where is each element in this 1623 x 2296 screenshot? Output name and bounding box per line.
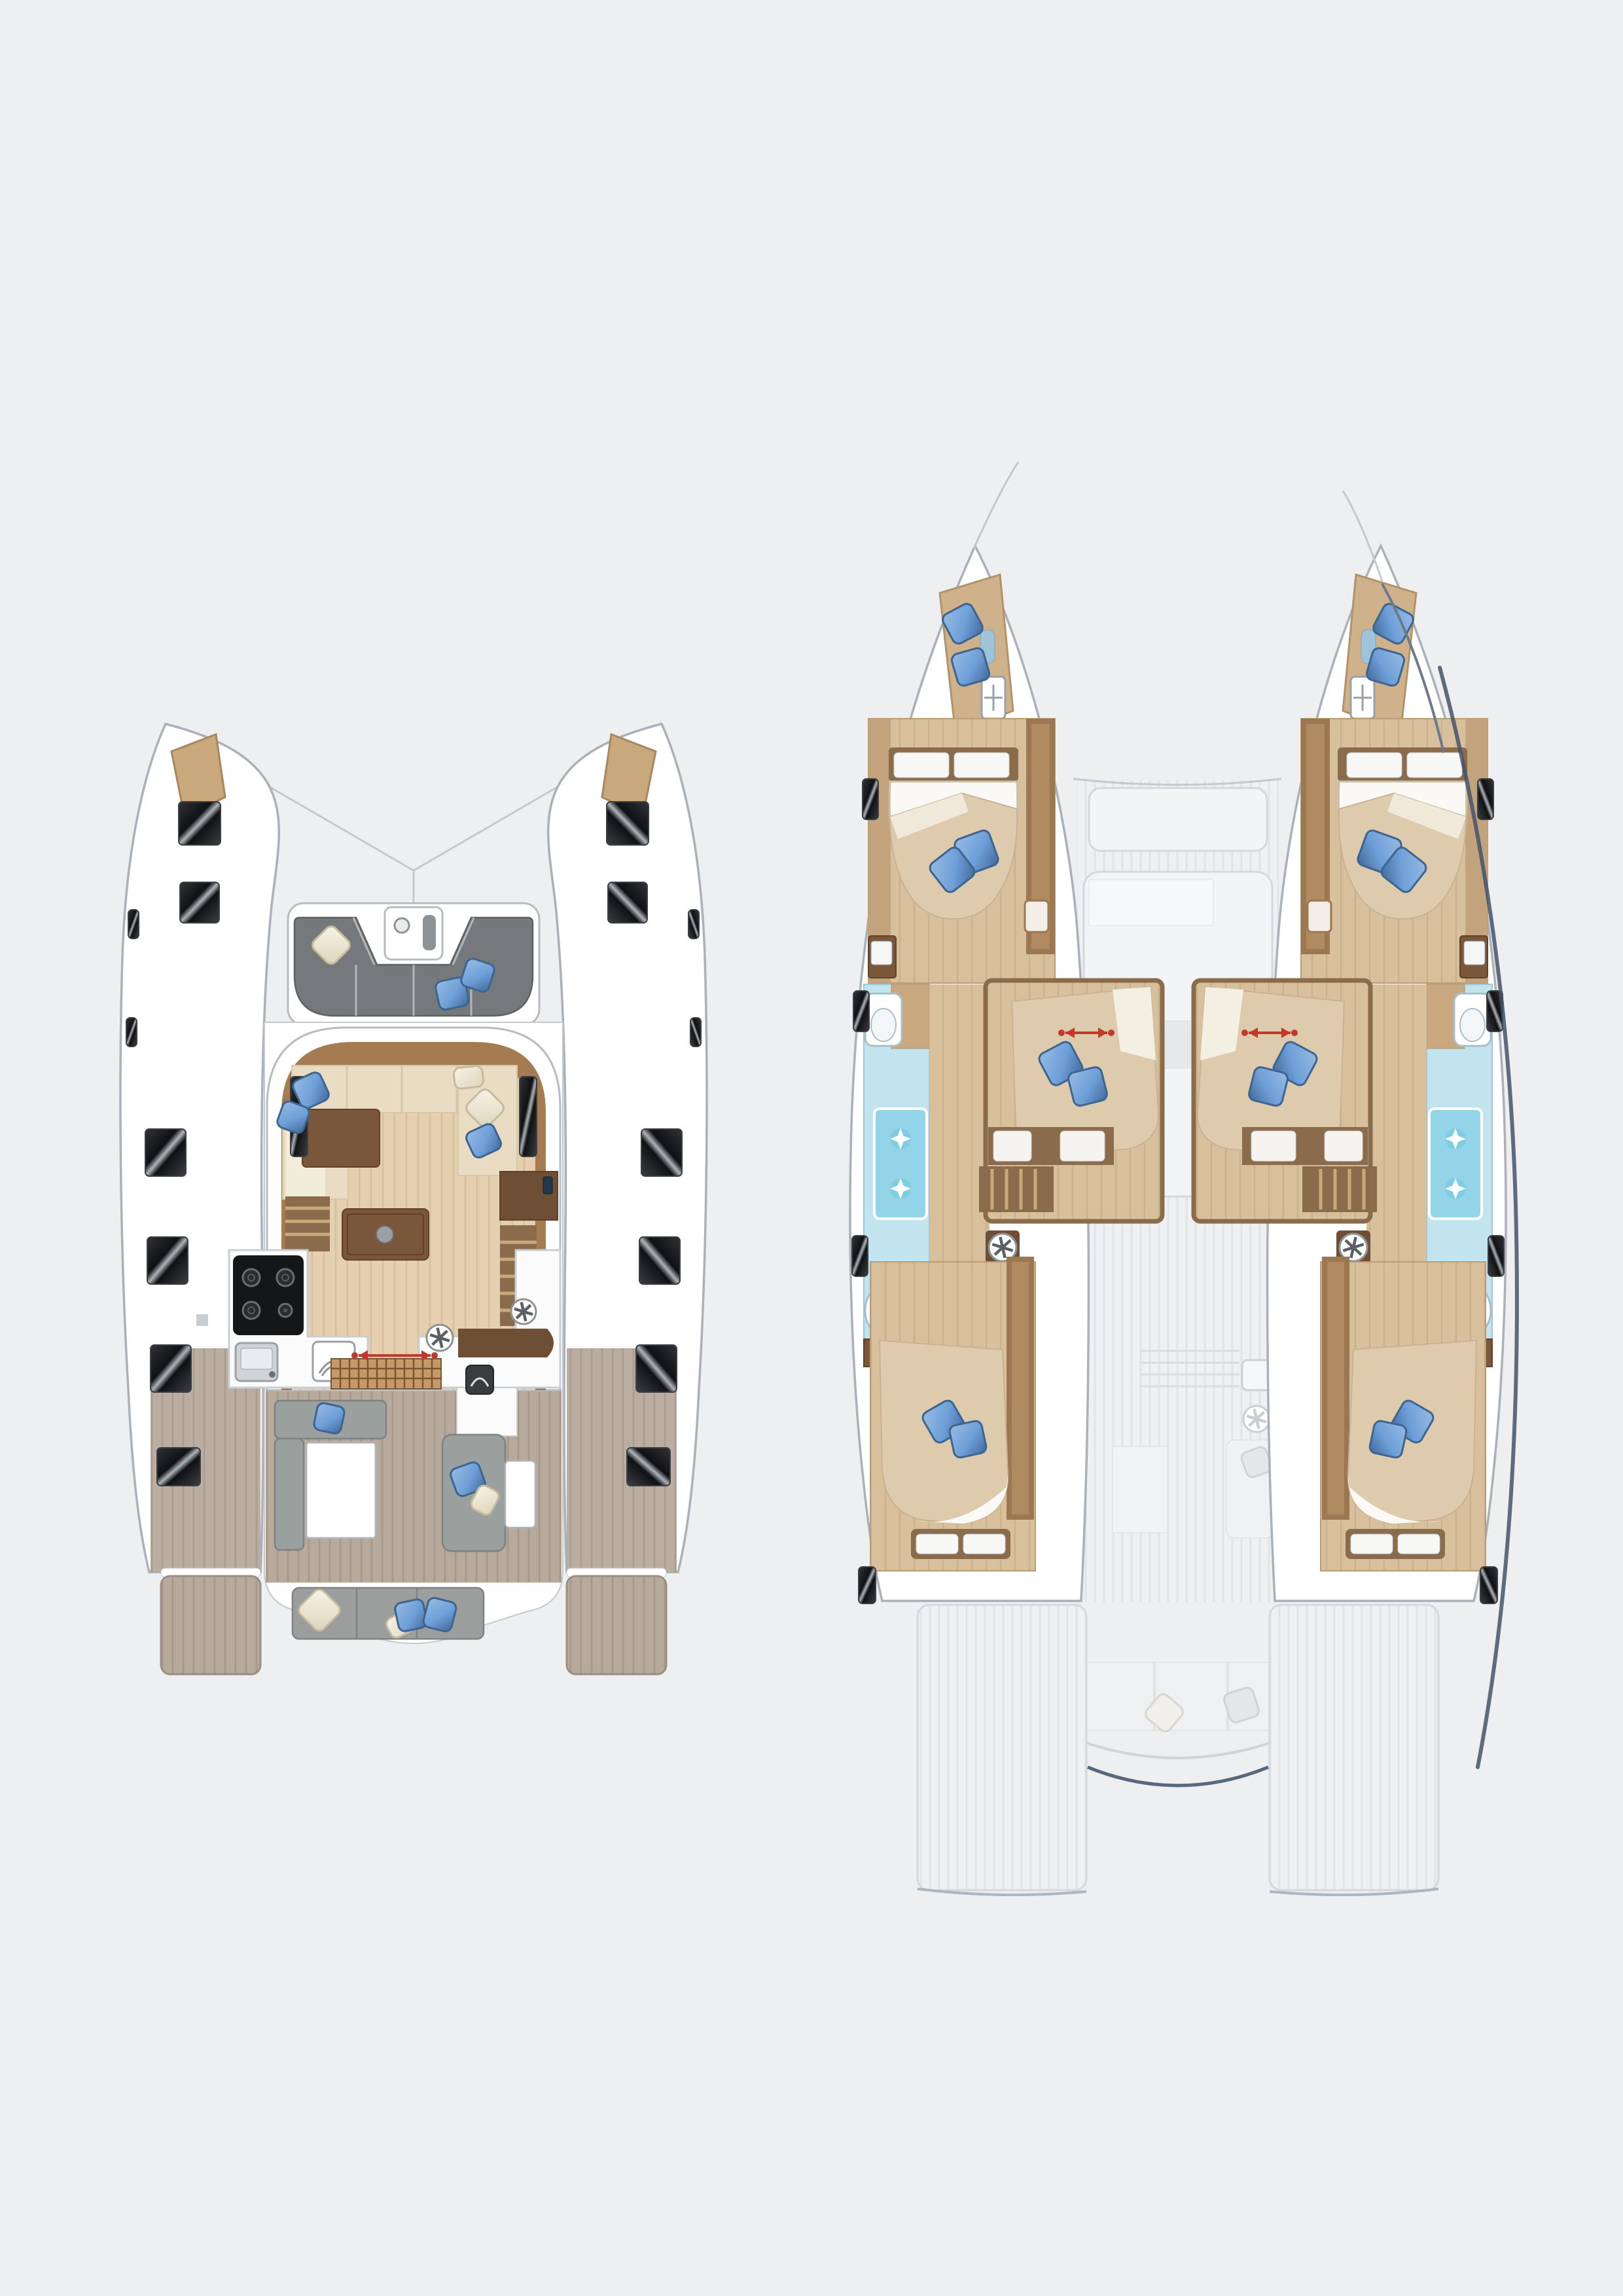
window-glass bbox=[1488, 1236, 1504, 1276]
burner-icon bbox=[279, 1304, 292, 1317]
window-glass bbox=[147, 1237, 188, 1284]
ghost-saloon-sofa bbox=[1089, 880, 1213, 925]
pillow-blue-icon bbox=[313, 1402, 346, 1435]
window-glass bbox=[145, 1129, 186, 1176]
ghost-aft-bench bbox=[1081, 1662, 1301, 1731]
window-glass bbox=[859, 1567, 876, 1604]
cockpit-table bbox=[306, 1443, 376, 1538]
swim-platform bbox=[567, 1576, 666, 1674]
footboard-panel bbox=[916, 1534, 958, 1554]
shower-sparkle-icon bbox=[1445, 1128, 1466, 1149]
aft-wardrobe bbox=[1327, 1262, 1344, 1515]
burner-icon bbox=[277, 1269, 294, 1286]
shower-sparkle-icon bbox=[1445, 1178, 1466, 1199]
bench-cushion bbox=[993, 1131, 1031, 1161]
cockpit-sofa-side bbox=[275, 1439, 304, 1550]
sink-basin bbox=[241, 1348, 272, 1369]
cockpit-sink bbox=[466, 1365, 493, 1394]
ghost-transom-steps bbox=[918, 1605, 1086, 1890]
toilet-seat bbox=[1460, 1009, 1485, 1041]
swim-platform bbox=[161, 1576, 260, 1674]
footboard-panel bbox=[1351, 1534, 1393, 1554]
burner-icon bbox=[243, 1302, 260, 1319]
ghost-cockpit-table bbox=[1113, 1446, 1168, 1533]
window-glass bbox=[641, 1129, 682, 1176]
pillow-blue-icon bbox=[1368, 1420, 1407, 1458]
window-glass bbox=[180, 882, 219, 923]
faucet-icon bbox=[269, 1371, 276, 1378]
window-glass bbox=[128, 910, 139, 939]
footboard-panel bbox=[1398, 1534, 1440, 1554]
pillow-blue-icon bbox=[1247, 1066, 1289, 1107]
window-glass bbox=[126, 1018, 137, 1047]
pillow-blue-icon bbox=[948, 1420, 987, 1458]
toilet-seat bbox=[871, 1009, 896, 1041]
phone-icon bbox=[543, 1177, 552, 1194]
footboard-panel bbox=[963, 1534, 1005, 1554]
window-glass bbox=[179, 802, 221, 845]
window-glass bbox=[1478, 779, 1493, 819]
window-glass bbox=[863, 779, 878, 819]
brand-plate bbox=[196, 1314, 208, 1326]
window-glass bbox=[636, 1345, 677, 1392]
shower-tray bbox=[1429, 1109, 1482, 1219]
bench-cushion bbox=[1325, 1131, 1363, 1161]
window-glass bbox=[852, 1236, 868, 1276]
headboard-panel bbox=[1407, 753, 1462, 778]
bench-cushion bbox=[1060, 1131, 1105, 1161]
port-companionway bbox=[285, 1196, 330, 1251]
bedside-locker bbox=[1025, 901, 1048, 932]
rotary-vent-icon bbox=[427, 1325, 453, 1351]
ghost-forward-cockpit-sofa bbox=[1089, 788, 1267, 851]
bedside-locker bbox=[1308, 901, 1331, 932]
port-hull-maindeck-mirrored bbox=[548, 724, 707, 1674]
window-glass bbox=[639, 1237, 680, 1284]
pillow-blue-icon bbox=[1067, 1066, 1108, 1107]
shower-sparkle-icon bbox=[890, 1128, 911, 1149]
burner-icon bbox=[243, 1269, 260, 1286]
vanity-sink bbox=[1464, 941, 1485, 965]
window-glass bbox=[607, 802, 649, 845]
companionway-stairs bbox=[1302, 1166, 1377, 1212]
bar-sink-icon bbox=[395, 918, 409, 933]
pillow-blue-icon bbox=[422, 1596, 457, 1632]
headboard-panel bbox=[894, 753, 949, 778]
ghost-sink bbox=[1242, 1360, 1271, 1390]
catamaran-floorplan-sheet bbox=[0, 0, 1623, 2296]
headboard-panel bbox=[954, 753, 1009, 778]
ghost-vent-icons bbox=[1243, 1406, 1270, 1432]
cockpit-peninsula bbox=[457, 1388, 517, 1436]
ghost-transom-steps bbox=[1270, 1605, 1438, 1890]
forward-cockpit bbox=[288, 903, 539, 1025]
companionway-stairs bbox=[979, 1166, 1054, 1212]
aft-sideboard bbox=[458, 1329, 554, 1357]
window-glass bbox=[627, 1448, 670, 1486]
stove bbox=[233, 1255, 304, 1335]
window-glass bbox=[157, 1448, 200, 1486]
headboard-panel bbox=[1347, 753, 1402, 778]
cockpit-side-unit bbox=[505, 1461, 535, 1528]
shower-tray bbox=[874, 1109, 927, 1219]
rotary-vent-icon bbox=[511, 1299, 536, 1324]
table-handle-icon bbox=[376, 1226, 393, 1243]
window-glass bbox=[608, 882, 647, 923]
window-glass bbox=[688, 910, 699, 939]
bar-hatch-icon bbox=[423, 915, 436, 950]
pillow-blue-icon bbox=[394, 1598, 428, 1632]
window-glass bbox=[1480, 1567, 1497, 1604]
pillow-cream-icon bbox=[453, 1066, 484, 1089]
window-glass bbox=[520, 1077, 537, 1157]
port-hull-maindeck bbox=[120, 724, 279, 1674]
window-glass bbox=[151, 1345, 191, 1392]
bench-cushion bbox=[1251, 1131, 1296, 1161]
vanity-sink bbox=[871, 941, 892, 965]
rotary-vent-icon bbox=[1243, 1406, 1270, 1432]
window-glass bbox=[690, 1018, 701, 1047]
shower-sparkle-icon bbox=[890, 1178, 911, 1199]
window-glass bbox=[853, 991, 869, 1031]
coffee-table bbox=[302, 1109, 380, 1167]
aft-wardrobe bbox=[1012, 1262, 1029, 1515]
